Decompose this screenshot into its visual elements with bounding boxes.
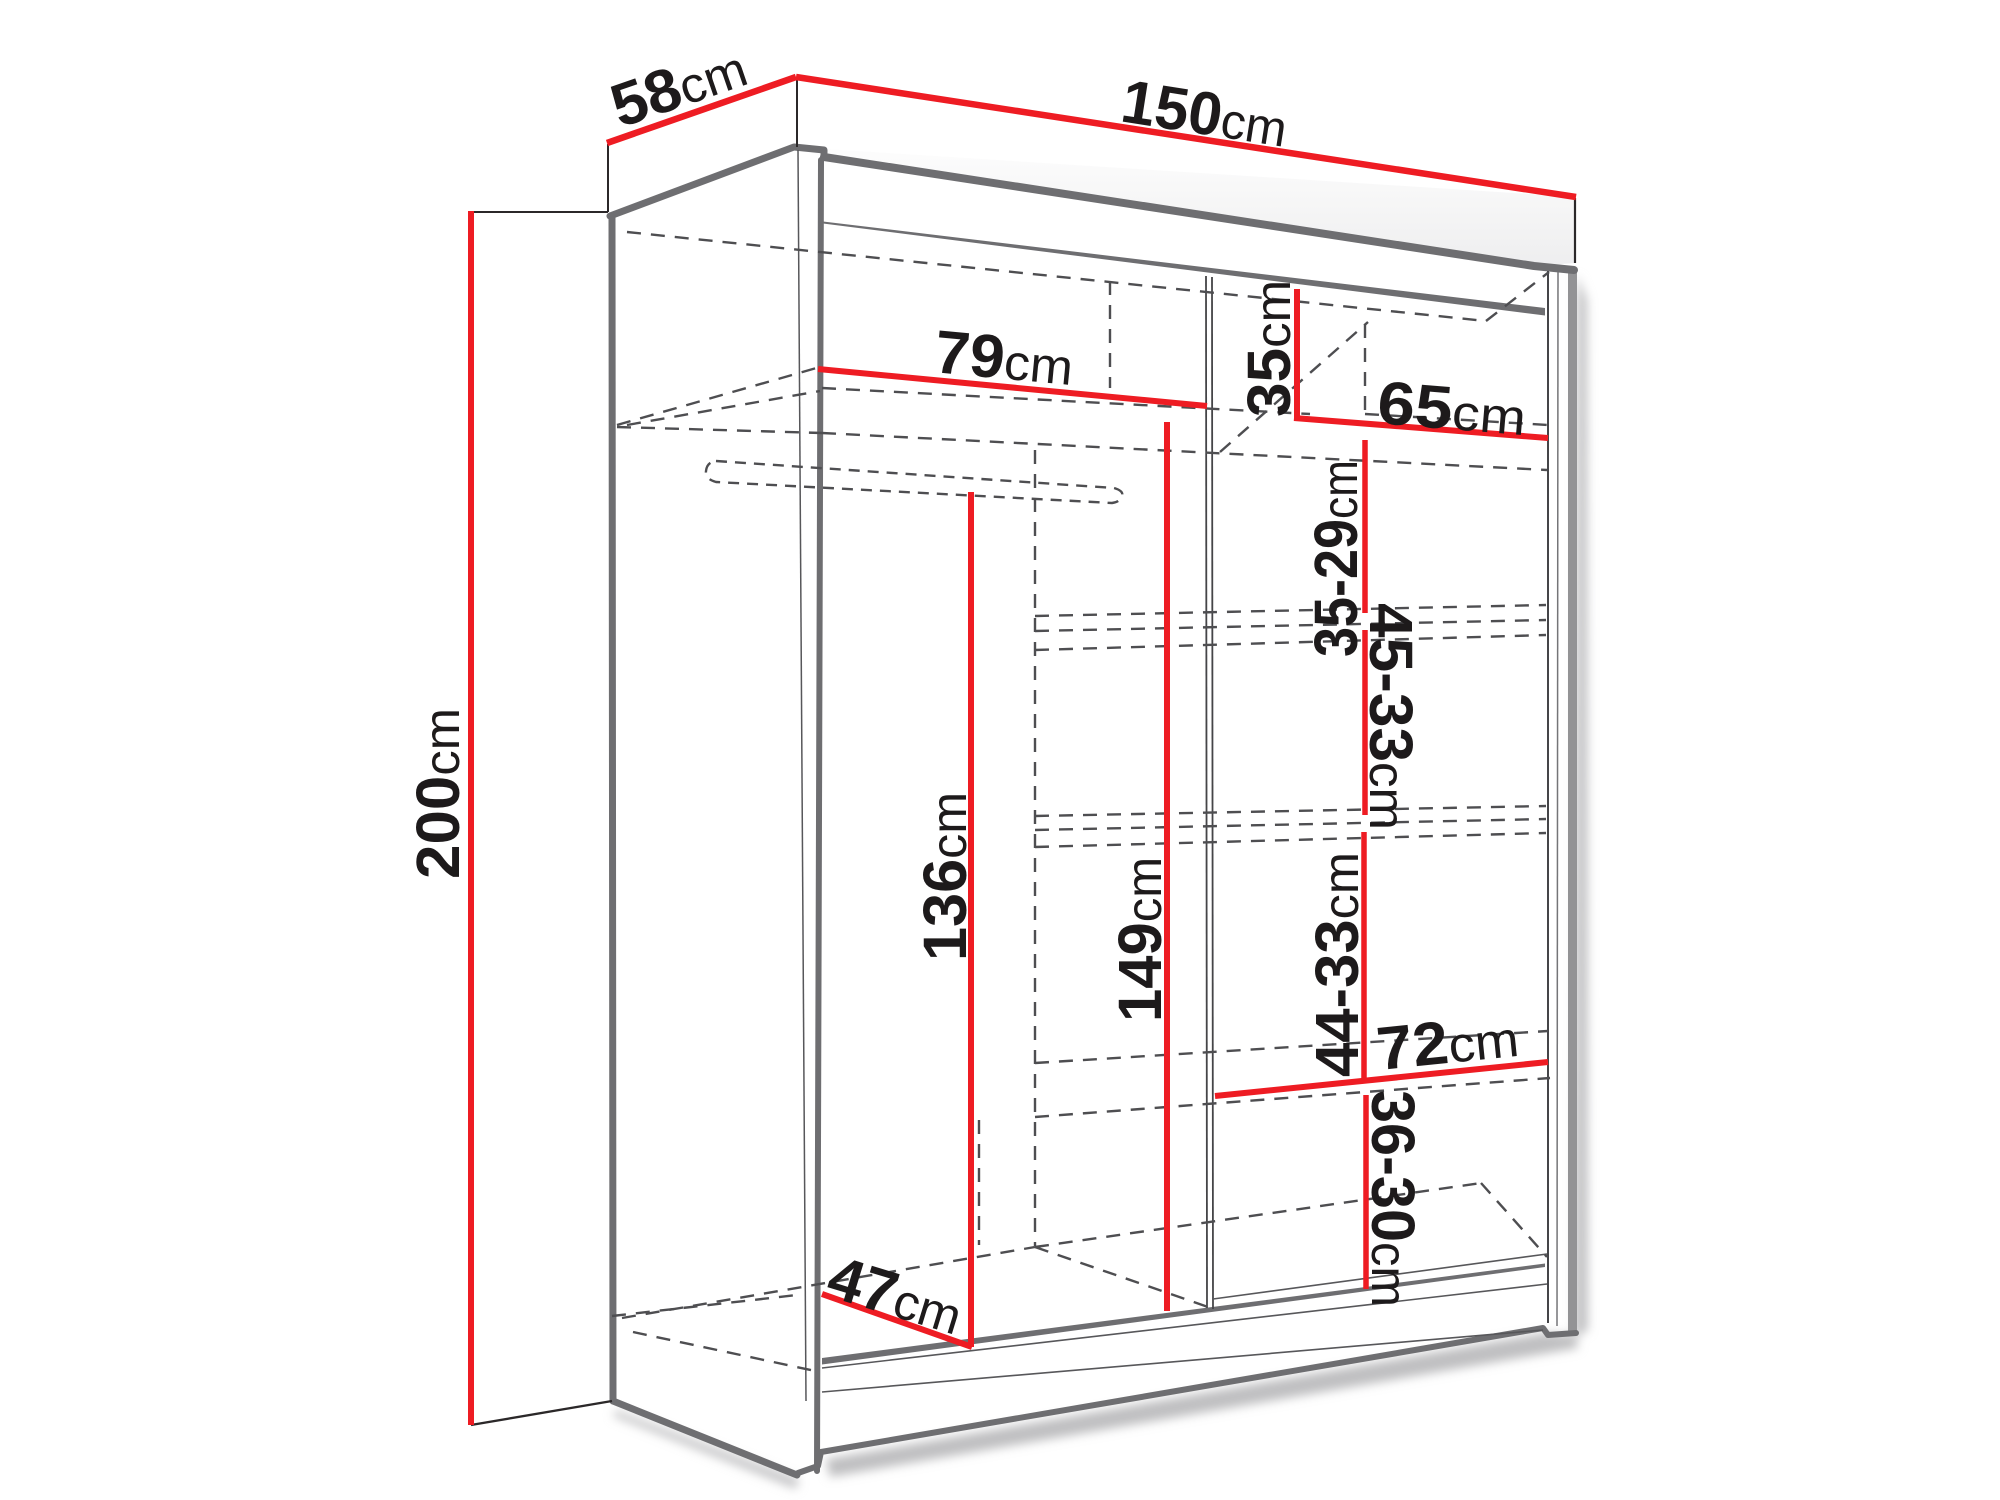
- svg-text:35cm: 35cm: [1235, 280, 1303, 417]
- svg-text:149cm: 149cm: [1106, 857, 1174, 1022]
- svg-text:45-33cm: 45-33cm: [1357, 603, 1425, 830]
- svg-text:36-30cm: 36-30cm: [1359, 1090, 1427, 1307]
- svg-text:200cm: 200cm: [404, 708, 472, 879]
- svg-text:44-33cm: 44-33cm: [1303, 852, 1371, 1077]
- svg-text:136cm: 136cm: [911, 792, 979, 961]
